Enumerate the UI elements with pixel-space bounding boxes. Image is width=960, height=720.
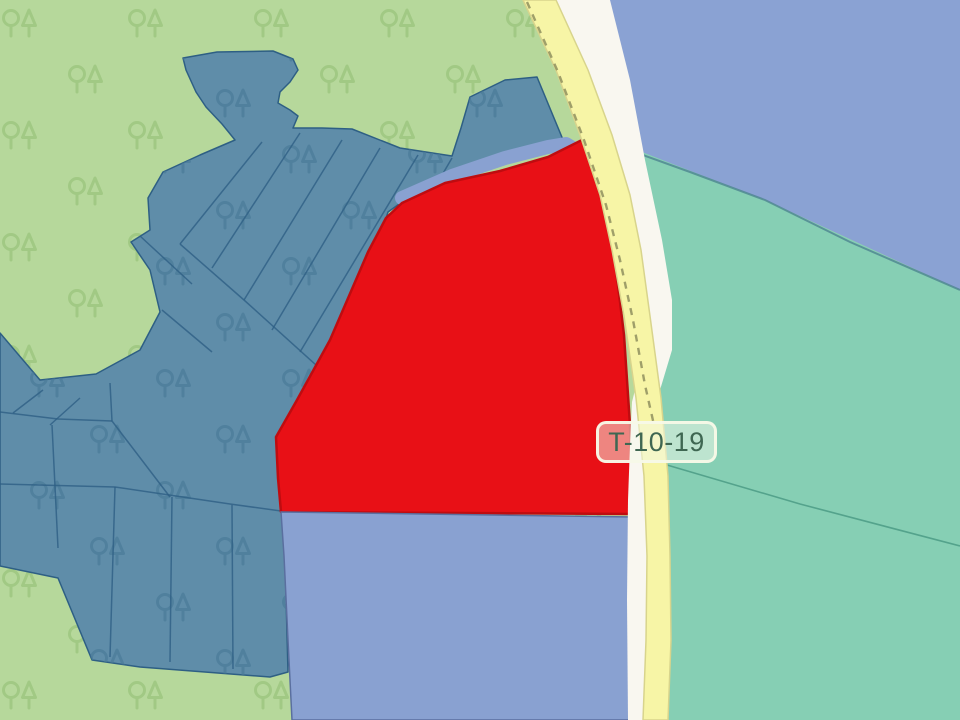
road-label: T-10-19 — [596, 421, 717, 463]
road-label-text: T-10-19 — [608, 427, 705, 458]
map-viewport[interactable]: T-10-19 — [0, 0, 960, 720]
parcel-below-highlight[interactable] — [281, 512, 636, 720]
map-canvas[interactable] — [0, 0, 960, 720]
